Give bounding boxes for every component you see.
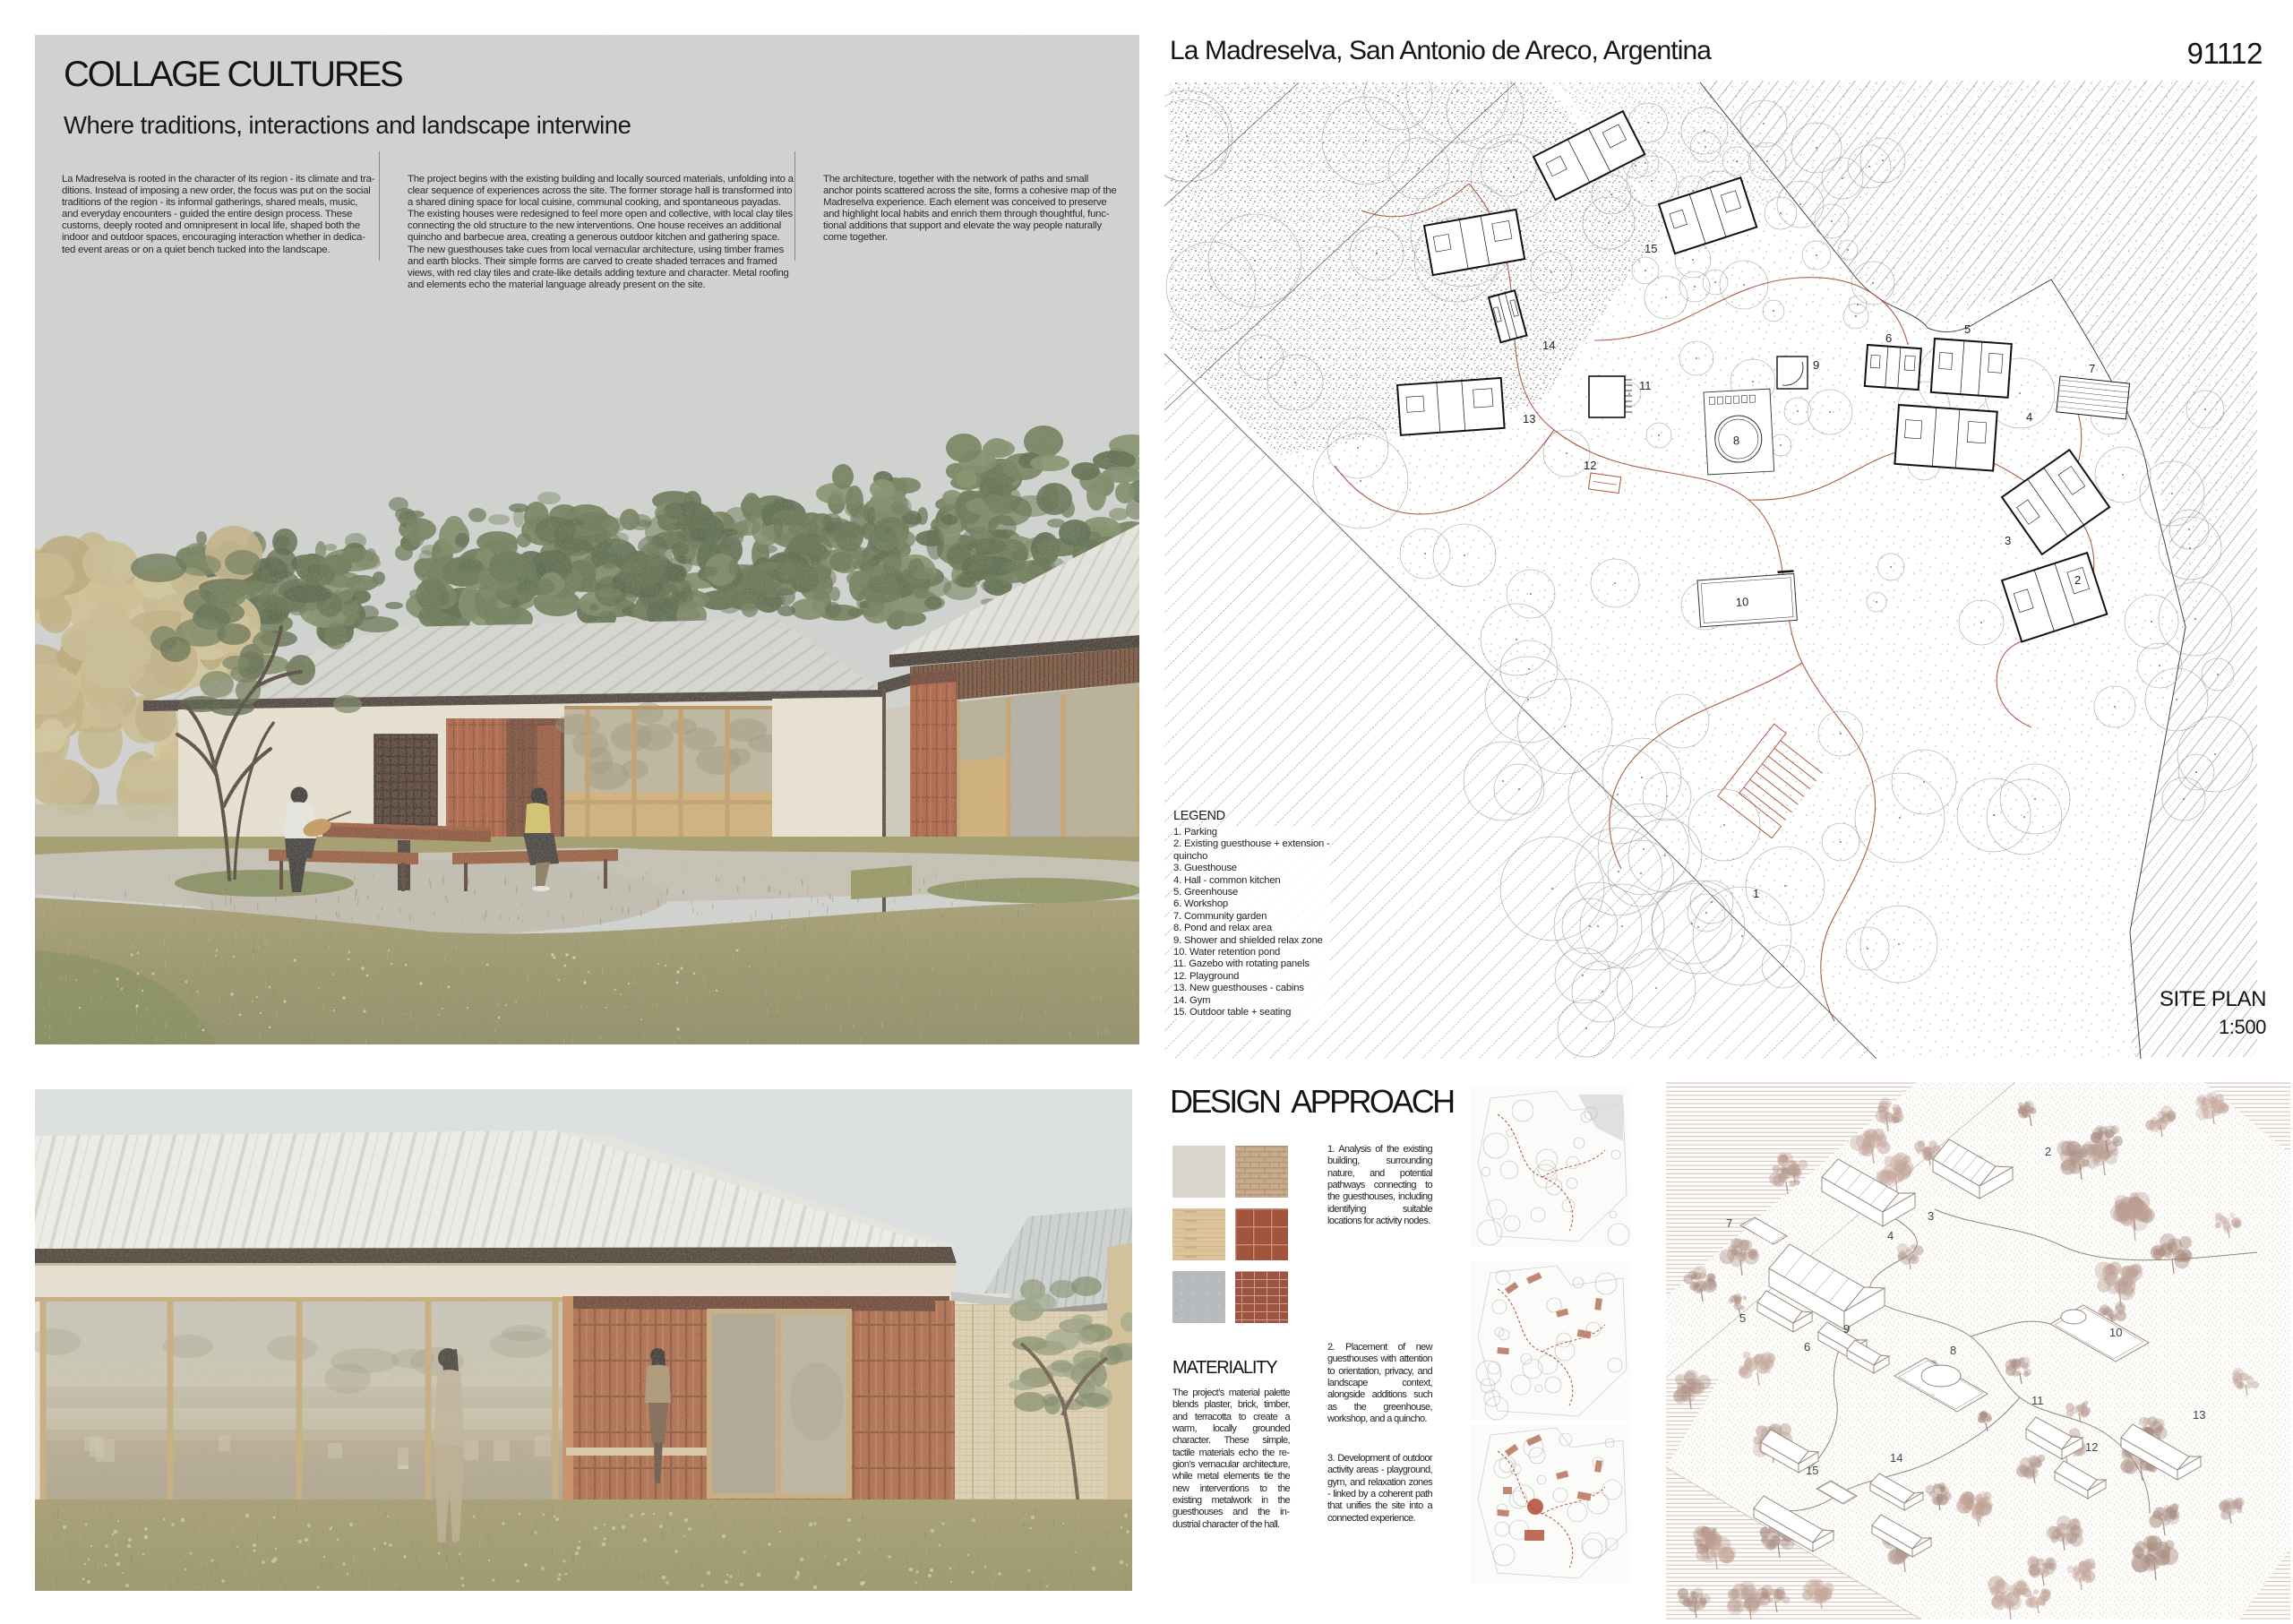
svg-text:11: 11 [1639, 379, 1652, 392]
svg-text:5: 5 [1739, 1311, 1746, 1325]
svg-text:10: 10 [2109, 1326, 2122, 1339]
svg-text:10: 10 [1735, 595, 1748, 609]
svg-text:14: 14 [1542, 339, 1555, 352]
svg-text:9: 9 [1843, 1322, 1850, 1336]
svg-text:12: 12 [1584, 459, 1596, 472]
svg-text:4: 4 [2026, 410, 2032, 424]
svg-text:8: 8 [1950, 1344, 1956, 1357]
svg-text:13: 13 [2193, 1408, 2205, 1422]
svg-text:7: 7 [2089, 362, 2095, 375]
svg-text:7: 7 [1726, 1216, 1732, 1230]
svg-text:6: 6 [1885, 331, 1892, 345]
svg-text:8: 8 [1732, 434, 1739, 447]
svg-text:13: 13 [1523, 412, 1535, 425]
svg-text:15: 15 [1645, 242, 1657, 255]
svg-text:14: 14 [1890, 1451, 1902, 1465]
svg-text:3: 3 [1928, 1209, 1934, 1223]
svg-text:12: 12 [2085, 1440, 2098, 1454]
svg-text:9: 9 [1813, 358, 1819, 372]
svg-text:5: 5 [1964, 322, 1971, 336]
svg-text:4: 4 [1887, 1229, 1894, 1242]
svg-text:2: 2 [2045, 1145, 2051, 1158]
svg-text:2: 2 [2074, 573, 2081, 587]
svg-text:11: 11 [2031, 1394, 2044, 1407]
svg-text:6: 6 [1804, 1340, 1810, 1353]
svg-text:1: 1 [1753, 887, 1759, 900]
svg-text:3: 3 [2005, 534, 2011, 547]
